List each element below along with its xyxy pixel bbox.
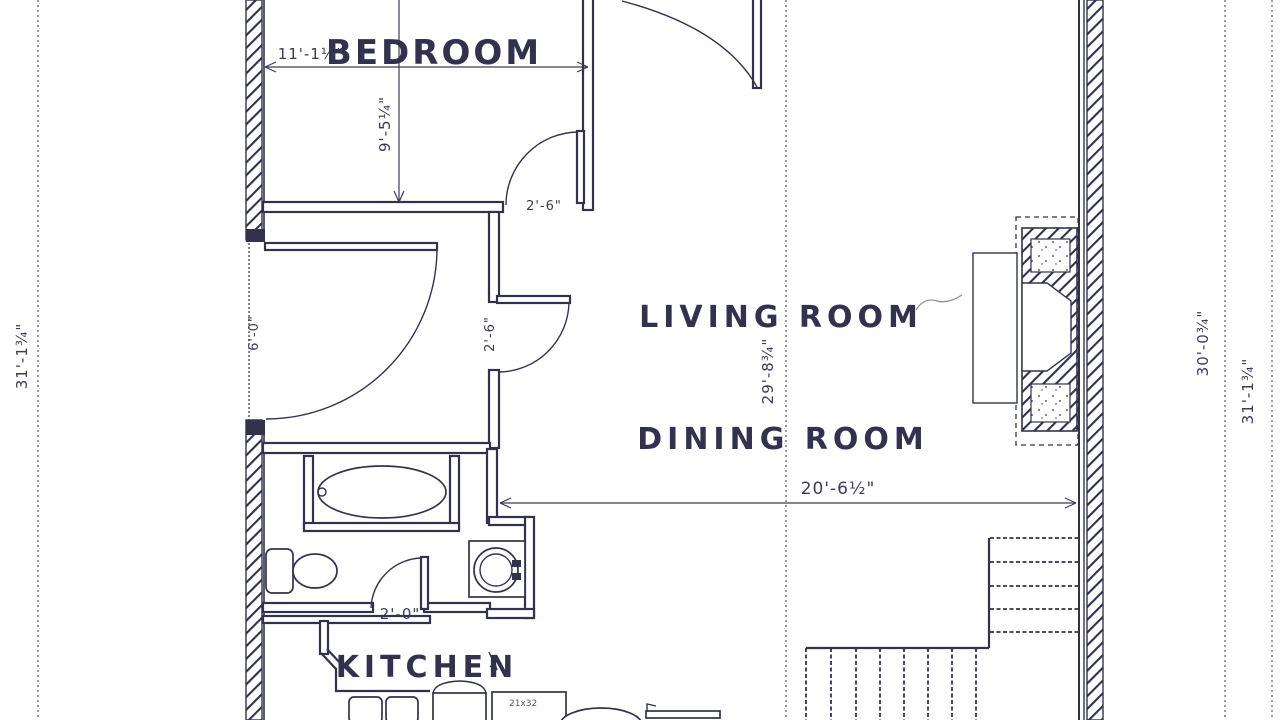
- bath-north-wall: [263, 443, 490, 453]
- hall-door-leaf: [497, 296, 570, 303]
- bedroom-label: BEDROOM: [326, 33, 542, 73]
- counter-right: [646, 704, 720, 718]
- dining-room-label: DINING ROOM: [637, 422, 928, 457]
- bath-south-wall-right: [424, 603, 490, 612]
- overall-right-outer-label: 31'-1¾": [1239, 358, 1257, 425]
- hall-east-wall-upper: [489, 212, 499, 302]
- hall-door-label: 2'-6": [483, 316, 498, 352]
- nook-south-wall: [487, 609, 534, 618]
- left-entry-door-leaf: [265, 243, 437, 250]
- firebox-opening: [1022, 283, 1071, 371]
- bath-east-wall: [487, 449, 497, 523]
- fireplace-block-bottom: [1031, 384, 1070, 422]
- nook-east-wall: [525, 517, 534, 618]
- kitchen-table: [560, 708, 642, 720]
- overall-right-inner-label: 30'-0¾": [1194, 310, 1212, 377]
- bedroom-door-leaf: [577, 131, 584, 203]
- living-width-label: 20'-6½": [801, 479, 876, 499]
- bath-door-label: 2'-0": [380, 605, 421, 623]
- bedroom-south-wall: [263, 202, 503, 212]
- refrigerator: 21x32: [492, 692, 566, 720]
- hall-east-wall-lower: [489, 370, 499, 448]
- bath-door-leaf: [421, 557, 428, 609]
- fireplace-block-top: [1031, 239, 1070, 272]
- fireplace: [916, 217, 1078, 445]
- refrigerator-size-label: 21x32: [509, 699, 537, 709]
- kitchen-sink-basin-right: [386, 697, 418, 720]
- bedroom-door-swing: [506, 132, 578, 205]
- kitchen-sink-basin-left: [349, 697, 382, 720]
- bathtub: [304, 456, 459, 531]
- bedroom-depth-label: 9'-5¼": [376, 96, 394, 152]
- floor-plan-sheet: 21x32: [0, 0, 1280, 720]
- kitchen-label: KITCHEN: [336, 650, 519, 685]
- floor-plan-canvas: 21x32: [0, 0, 1280, 720]
- hall-top-door-swing: [622, 1, 757, 87]
- bath-south-wall-left: [263, 603, 373, 612]
- toilet: [266, 549, 337, 593]
- faucet-handle-2: [512, 573, 521, 580]
- left-door-label: 6'-0": [247, 315, 262, 351]
- lavatory-sink: [469, 541, 525, 597]
- overall-left-label: 31'-1¾": [13, 323, 31, 390]
- nook-north-wall: [489, 517, 529, 525]
- kitchen-fixtures: 21x32: [349, 681, 720, 720]
- stairs: [806, 538, 1078, 720]
- left-door-jamb-bottom: [246, 420, 265, 435]
- living-depth-label: 29'-8¾": [759, 338, 777, 405]
- left-wall-upper: [246, 0, 262, 240]
- right-wall-hatch: [1087, 0, 1103, 720]
- living-room-label: LIVING ROOM: [639, 300, 923, 335]
- left-door-jamb-top: [246, 229, 265, 242]
- left-entry-door-swing: [266, 250, 437, 419]
- faucet-handle-1: [512, 560, 521, 567]
- fireplace-hearth: [973, 253, 1017, 403]
- bedroom-door-label: 2'-6": [526, 199, 562, 214]
- bath-door-swing: [371, 558, 421, 608]
- bedroom-width-label: 11'-1½": [278, 45, 345, 63]
- kitchen-west-jog: [320, 621, 328, 654]
- hall-top-wall: [753, 0, 761, 88]
- left-wall-lower: [246, 420, 262, 720]
- hall-door-swing: [499, 303, 569, 372]
- range-appliance: [433, 681, 486, 720]
